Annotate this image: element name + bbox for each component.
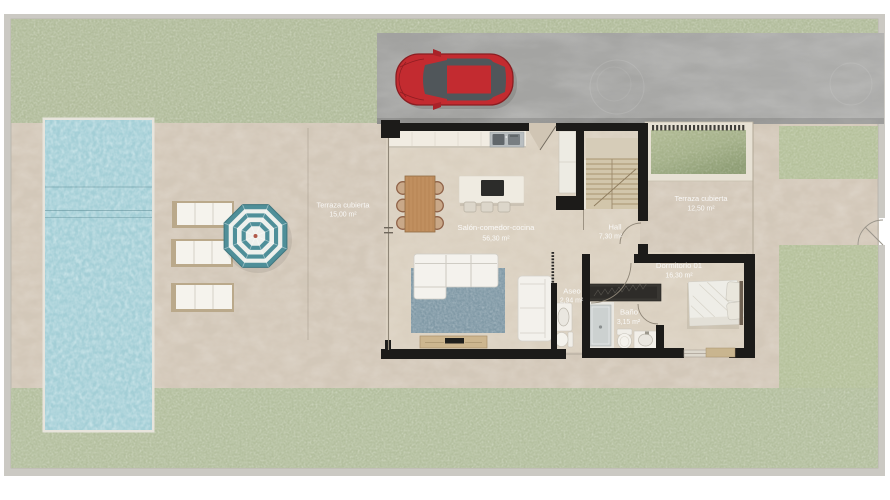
svg-text:16,30 m²: 16,30 m² — [665, 273, 693, 280]
svg-text:Salón-comedor-cocina: Salón-comedor-cocina — [458, 223, 536, 232]
svg-text:2,94 m²: 2,94 m² — [560, 298, 584, 305]
svg-text:Aseo: Aseo — [563, 287, 581, 296]
svg-text:Terraza cubierta: Terraza cubierta — [675, 194, 729, 203]
svg-text:Baño: Baño — [620, 308, 638, 317]
svg-text:56,30 m²: 56,30 m² — [482, 236, 510, 243]
svg-text:3,15 m²: 3,15 m² — [617, 319, 641, 326]
svg-text:15,00 m²: 15,00 m² — [329, 212, 357, 219]
svg-text:Hall: Hall — [608, 223, 622, 232]
svg-text:Terraza cubierta: Terraza cubierta — [317, 201, 371, 210]
svg-text:12,50 m²: 12,50 m² — [687, 206, 715, 213]
svg-text:7,30 m²: 7,30 m² — [599, 234, 623, 241]
svg-text:Dormitorio 01: Dormitorio 01 — [656, 261, 702, 270]
